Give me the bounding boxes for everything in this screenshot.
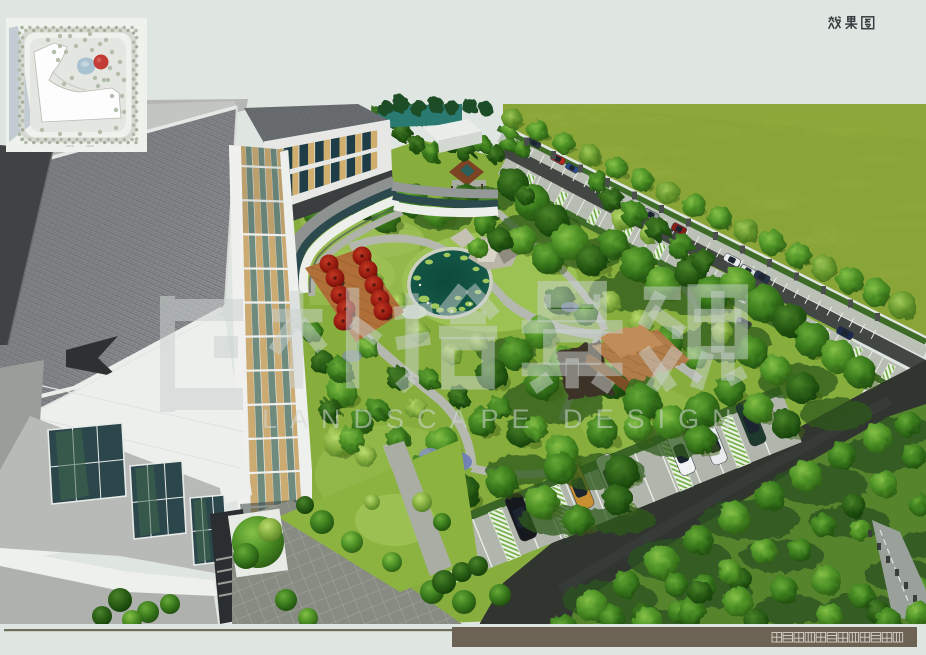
svg-text:LANDSCAPE DESIGN: LANDSCAPE DESIGN: [262, 404, 745, 434]
